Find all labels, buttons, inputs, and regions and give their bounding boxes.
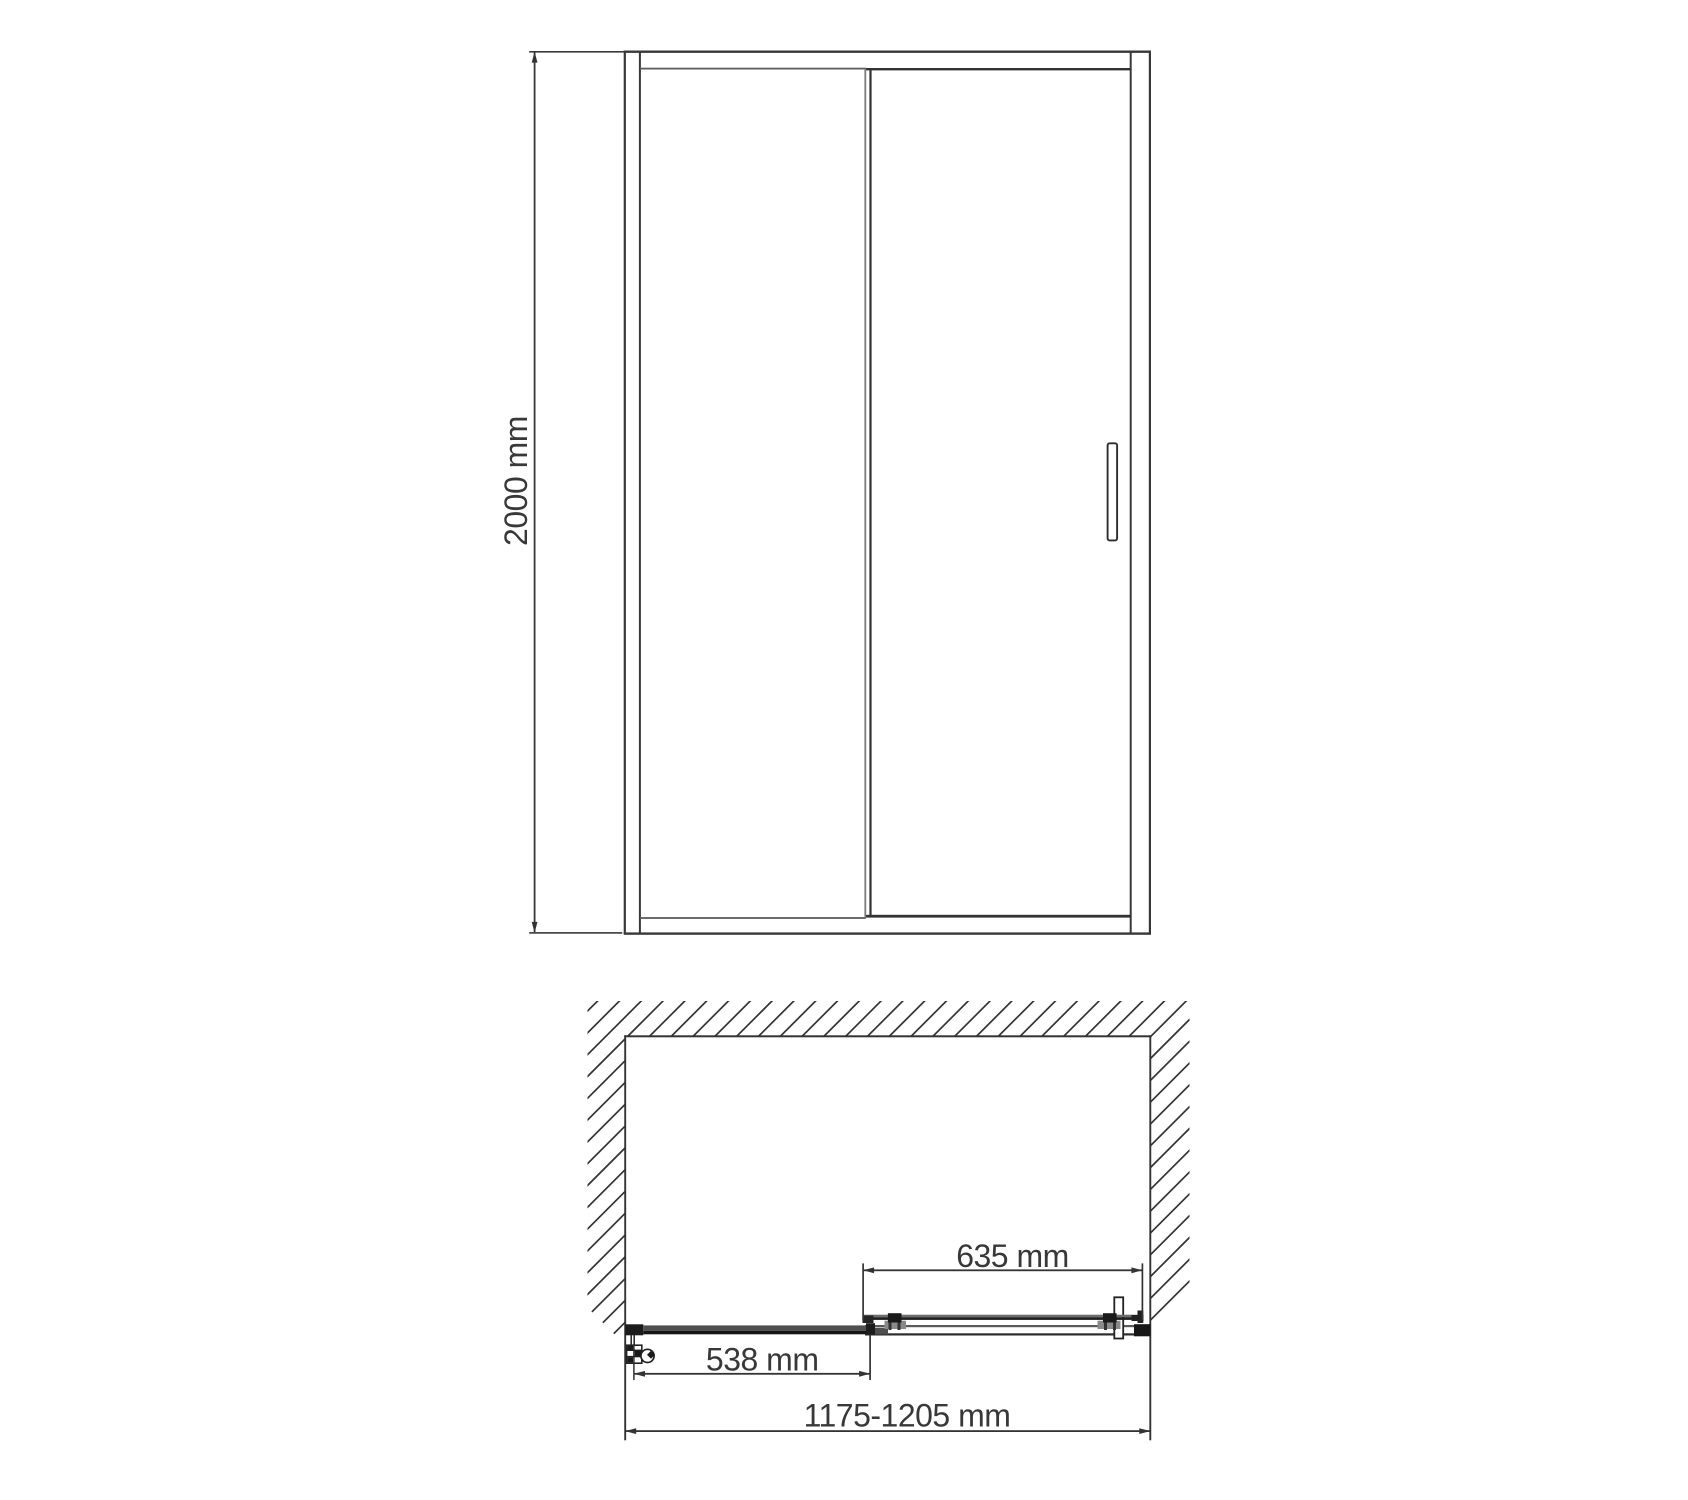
svg-text:1175-1205 mm: 1175-1205 mm — [804, 1398, 1011, 1434]
svg-text:538 mm: 538 mm — [706, 1341, 819, 1377]
svg-text:635 mm: 635 mm — [956, 1238, 1069, 1274]
svg-text:2000 mm: 2000 mm — [498, 416, 534, 546]
